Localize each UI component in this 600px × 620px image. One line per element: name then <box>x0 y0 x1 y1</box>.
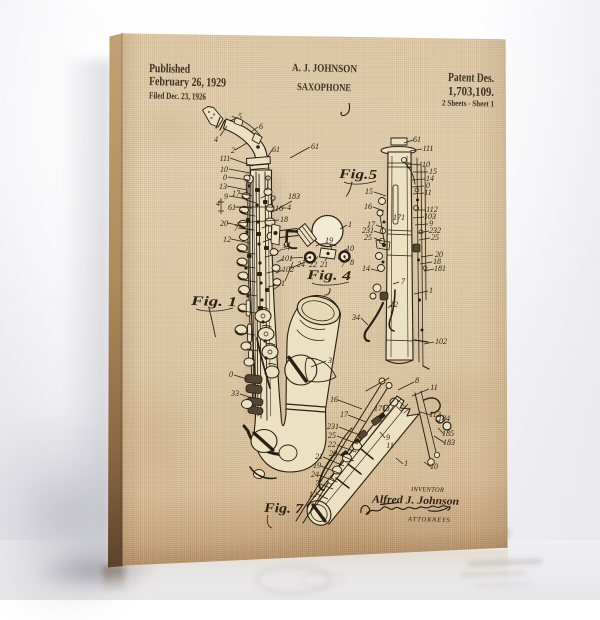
svg-text:11: 11 <box>424 188 431 197</box>
svg-text:1: 1 <box>348 220 352 229</box>
svg-text:19: 19 <box>313 461 321 470</box>
svg-text:Fig. 1: Fig. 1 <box>190 293 238 309</box>
svg-text:102: 102 <box>435 337 447 346</box>
svg-text:0: 0 <box>229 370 233 379</box>
svg-text:61: 61 <box>228 203 236 212</box>
svg-text:11: 11 <box>386 441 393 450</box>
svg-text:25: 25 <box>328 431 336 440</box>
svg-text:Fig. 4: Fig. 4 <box>306 267 352 283</box>
svg-text:1: 1 <box>404 459 408 468</box>
svg-text:Fig. 7: Fig. 7 <box>263 500 305 516</box>
svg-text:25: 25 <box>431 233 439 242</box>
svg-text:102: 102 <box>282 265 294 274</box>
svg-text:21: 21 <box>315 452 323 461</box>
svg-text:183: 183 <box>288 192 300 201</box>
svg-text:61: 61 <box>311 142 319 151</box>
svg-text:111: 111 <box>423 144 434 153</box>
svg-text:25: 25 <box>364 233 372 242</box>
svg-text:6: 6 <box>259 122 263 131</box>
svg-text:24: 24 <box>297 260 305 269</box>
svg-text:13: 13 <box>219 182 227 191</box>
svg-text:22: 22 <box>309 260 317 269</box>
svg-text:9: 9 <box>224 192 228 201</box>
svg-text:8: 8 <box>350 258 354 267</box>
svg-text:1: 1 <box>429 286 433 295</box>
svg-text:Fig.5: Fig.5 <box>338 166 378 182</box>
svg-text:5: 5 <box>238 112 242 121</box>
svg-text:61: 61 <box>413 135 421 144</box>
svg-text:12: 12 <box>223 235 231 244</box>
svg-text:16: 16 <box>364 202 372 211</box>
svg-text:181: 181 <box>434 264 446 273</box>
svg-text:171: 171 <box>393 213 405 222</box>
svg-text:0: 0 <box>223 173 227 182</box>
svg-text:12: 12 <box>390 300 398 309</box>
svg-text:33: 33 <box>230 389 239 398</box>
svg-text:2: 2 <box>231 146 235 155</box>
svg-text:24: 24 <box>311 470 319 479</box>
svg-text:20: 20 <box>220 219 228 228</box>
svg-text:INVENTOR: INVENTOR <box>410 486 445 494</box>
svg-text:16: 16 <box>330 395 338 404</box>
svg-text:231: 231 <box>327 422 339 431</box>
svg-text:ATTORNEYS: ATTORNEYS <box>407 516 451 524</box>
svg-text:61: 61 <box>272 145 280 154</box>
svg-text:10: 10 <box>430 462 438 471</box>
svg-text:20: 20 <box>329 449 337 458</box>
svg-text:4: 4 <box>214 135 218 144</box>
svg-text:171: 171 <box>374 404 386 413</box>
svg-text:4: 4 <box>216 199 220 208</box>
svg-text:111: 111 <box>220 154 231 163</box>
svg-text:17: 17 <box>340 410 349 419</box>
svg-text:4: 4 <box>287 203 291 212</box>
svg-text:1: 1 <box>281 279 285 288</box>
svg-text:12: 12 <box>309 490 317 499</box>
svg-text:14: 14 <box>362 264 370 273</box>
svg-text:19: 19 <box>325 236 333 245</box>
svg-text:101: 101 <box>281 254 293 263</box>
svg-text:Alfred J. Johnson: Alfred J. Johnson <box>371 493 459 507</box>
svg-text:18: 18 <box>280 215 288 224</box>
svg-text:22: 22 <box>328 440 336 449</box>
svg-text:11: 11 <box>430 383 437 392</box>
svg-text:34: 34 <box>351 313 360 322</box>
svg-text:8: 8 <box>415 376 419 385</box>
svg-text:15: 15 <box>365 187 373 196</box>
svg-text:21: 21 <box>320 260 328 269</box>
svg-text:10: 10 <box>346 244 354 253</box>
svg-text:3: 3 <box>327 356 332 365</box>
